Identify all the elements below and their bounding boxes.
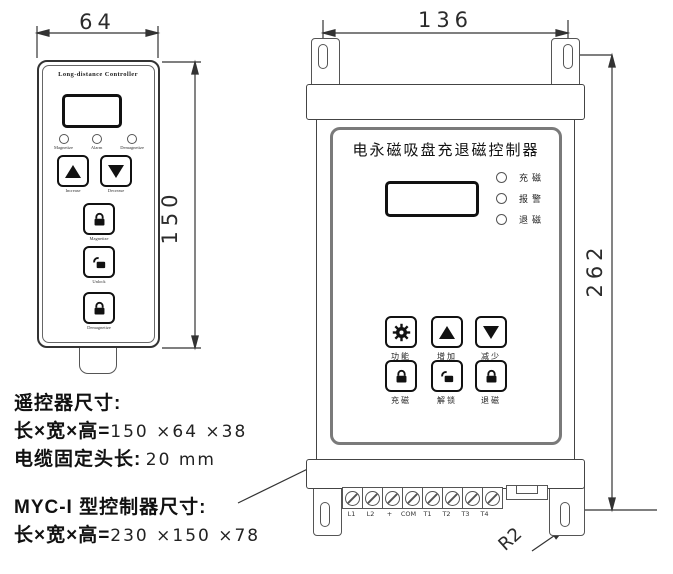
- up-arrow-icon: [65, 165, 81, 178]
- mounting-slot: [318, 44, 328, 69]
- controller-decrease-group: 减少: [468, 316, 514, 362]
- terminal-label: T2: [437, 510, 456, 518]
- button-label: Decrease: [108, 188, 125, 193]
- remote-unlock-group: Unlock: [76, 246, 122, 284]
- screw-terminal-icon: [465, 491, 480, 506]
- terminal-label: T4: [475, 510, 494, 518]
- cable-gland-prefix: 电缆固定头长:: [14, 449, 141, 470]
- controller-display: [385, 181, 479, 217]
- remote-magnetize-group: Magnetize: [76, 203, 122, 241]
- cable-gland-value: 20 mm: [146, 450, 216, 470]
- button-label: 退磁: [481, 395, 501, 406]
- corner-radius-label: R2: [486, 515, 534, 563]
- controller-magnetize-group: 充磁: [378, 360, 424, 406]
- remote-magnetize-button[interactable]: [83, 203, 115, 235]
- indicator-label: 退磁: [519, 213, 545, 226]
- remote-size-value: 150 ×64 ×38: [110, 422, 247, 442]
- controller-demagnetize-group: 退磁: [468, 360, 514, 406]
- indicator-label: 充磁: [519, 171, 545, 184]
- controller-height-dimension: 262: [573, 241, 617, 299]
- screw-terminal-icon: [425, 491, 440, 506]
- alarm-led-icon: [92, 134, 102, 144]
- terminal-labels: L1 L2 + COM T1 T2 T3 T4: [342, 510, 494, 518]
- lock-icon: [91, 300, 108, 317]
- connector-notch: [516, 485, 538, 494]
- magnetize-led-icon: [496, 172, 507, 183]
- terminal-l1: [343, 488, 363, 508]
- controller-unlock-group: 解锁: [424, 360, 470, 406]
- mounting-slot: [560, 502, 570, 527]
- remote-display: [62, 94, 122, 128]
- controller-increase-button[interactable]: [431, 316, 463, 348]
- screw-terminal-icon: [405, 491, 420, 506]
- controller-function-group: 功能: [378, 316, 424, 362]
- terminal-label: T3: [456, 510, 475, 518]
- remote-unlock-button[interactable]: [83, 246, 115, 278]
- remote-size-prefix: 长×宽×高=: [14, 421, 110, 442]
- button-label: 解锁: [437, 395, 457, 406]
- terminal-label: +: [380, 510, 399, 518]
- screw-terminal-icon: [345, 491, 360, 506]
- controller-demagnetize-button[interactable]: [475, 360, 507, 392]
- button-label: Increase: [66, 188, 81, 193]
- lock-icon: [91, 211, 108, 228]
- controller-indicator-magnetize: 充磁: [496, 171, 545, 184]
- indicator-label: Alarm: [91, 145, 103, 150]
- terminal-label: T1: [418, 510, 437, 518]
- terminal-label: COM: [399, 510, 418, 518]
- indicator-label: 报警: [519, 192, 545, 205]
- remote-decrease-button[interactable]: [100, 155, 132, 187]
- unlock-icon: [91, 254, 108, 271]
- lock-icon: [393, 368, 410, 385]
- remote-demagnetize-group: Demagnetize: [76, 292, 122, 330]
- mounting-slot: [563, 44, 573, 69]
- button-label: 充磁: [391, 395, 411, 406]
- remote-demagnetize-button[interactable]: [83, 292, 115, 324]
- terminal-label: L2: [361, 510, 380, 518]
- remote-indicator-row: Magnetize Alarm Demagnetize: [54, 134, 144, 150]
- connector-block: [506, 485, 548, 500]
- remote-increase-button[interactable]: [57, 155, 89, 187]
- controller-size-line: 长×宽×高=230 ×150 ×78: [14, 520, 260, 547]
- controller-size-heading: MYC-I 型控制器尺寸:: [14, 492, 206, 519]
- demagnetize-led-icon: [127, 134, 137, 144]
- cable-gland-line: 电缆固定头长: 20 mm: [14, 444, 216, 471]
- screw-terminal-icon: [365, 491, 380, 506]
- unlock-icon: [439, 368, 456, 385]
- button-label: Demagnetize: [87, 325, 111, 330]
- terminal-t1: [423, 488, 443, 508]
- up-arrow-icon: [439, 326, 455, 339]
- button-label: Unlock: [92, 279, 105, 284]
- screw-terminal-icon: [445, 491, 460, 506]
- remote-width-dimension: 64: [37, 10, 158, 34]
- controller-unlock-button[interactable]: [431, 360, 463, 392]
- indicator-label: Magnetize: [54, 145, 73, 150]
- controller-title: 电永磁吸盘充退磁控制器: [330, 139, 562, 160]
- controller-size-prefix: 长×宽×高=: [14, 525, 110, 546]
- terminal-block: [342, 487, 503, 509]
- remote-size-heading: 遥控器尺寸:: [14, 388, 121, 415]
- remote-indicator-alarm: Alarm: [91, 134, 103, 150]
- alarm-led-icon: [496, 193, 507, 204]
- controller-top-cap: [306, 84, 585, 120]
- controller-indicator-alarm: 报警: [496, 192, 545, 205]
- remote-title: Long-distance Controller: [42, 71, 154, 78]
- remote-size-line: 长×宽×高=150 ×64 ×38: [14, 416, 247, 443]
- remote-arrow-buttons: Increase Decrease: [57, 155, 132, 193]
- controller-magnetize-button[interactable]: [385, 360, 417, 392]
- screw-terminal-icon: [485, 491, 500, 506]
- technical-drawing-canvas: 64 150 136 262 R2 Long-distance Controll…: [0, 0, 673, 574]
- terminal-t2: [443, 488, 463, 508]
- terminal-t4: [483, 488, 502, 508]
- screw-terminal-icon: [385, 491, 400, 506]
- controller-indicator-demagnetize: 退磁: [496, 213, 545, 226]
- controller-function-button[interactable]: [385, 316, 417, 348]
- gear-icon: [392, 323, 411, 342]
- controller-increase-group: 增加: [424, 316, 470, 362]
- controller-width-dimension: 136: [323, 8, 568, 32]
- terminal-plus: [383, 488, 403, 508]
- remote-indicator-demagnetize: Demagnetize: [120, 134, 144, 150]
- terminal-com: [403, 488, 423, 508]
- terminal-label: L1: [342, 510, 361, 518]
- down-arrow-icon: [108, 165, 124, 178]
- controller-size-value: 230 ×150 ×78: [110, 526, 260, 546]
- indicator-label: Demagnetize: [120, 145, 144, 150]
- controller-decrease-button[interactable]: [475, 316, 507, 348]
- button-label: Magnetize: [90, 236, 109, 241]
- remote-indicator-magnetize: Magnetize: [54, 134, 73, 150]
- terminal-t3: [463, 488, 483, 508]
- demagnetize-led-icon: [496, 214, 507, 225]
- magnetize-led-icon: [59, 134, 69, 144]
- terminal-l2: [363, 488, 383, 508]
- mounting-slot: [320, 502, 330, 527]
- down-arrow-icon: [483, 326, 499, 339]
- lock-icon: [483, 368, 500, 385]
- remote-cable-gland: [79, 347, 117, 374]
